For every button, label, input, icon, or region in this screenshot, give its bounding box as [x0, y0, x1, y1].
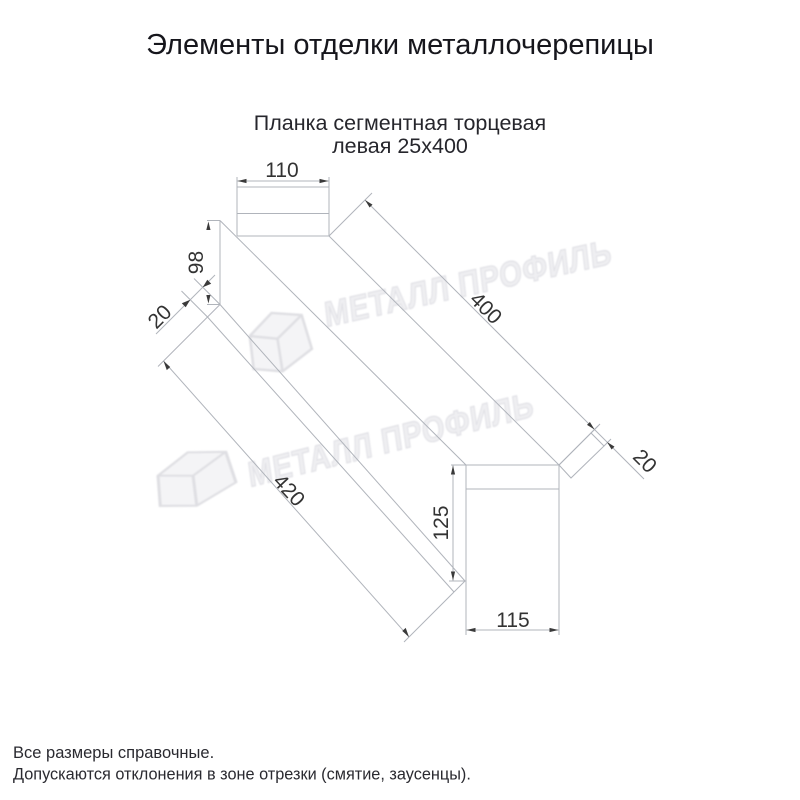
svg-text:110: 110: [265, 159, 298, 182]
svg-text:левая 25х400: левая 25х400: [332, 134, 468, 158]
svg-text:20: 20: [144, 301, 177, 334]
svg-text:Допускаются отклонения в зоне: Допускаются отклонения в зоне отрезки (с…: [13, 766, 471, 784]
svg-text:Все размеры справочные.: Все размеры справочные.: [13, 744, 214, 762]
svg-text:Элементы отделки металлочерепи: Элементы отделки металлочерепицы: [146, 29, 654, 61]
svg-text:МЕТАЛЛ ПРОФИЛЬ: МЕТАЛЛ ПРОФИЛЬ: [322, 232, 613, 334]
svg-text:115: 115: [496, 609, 529, 632]
svg-text:20: 20: [628, 445, 661, 478]
svg-text:125: 125: [430, 505, 453, 540]
svg-text:Планка сегментная торцевая: Планка сегментная торцевая: [254, 111, 546, 135]
svg-text:98: 98: [185, 251, 208, 274]
